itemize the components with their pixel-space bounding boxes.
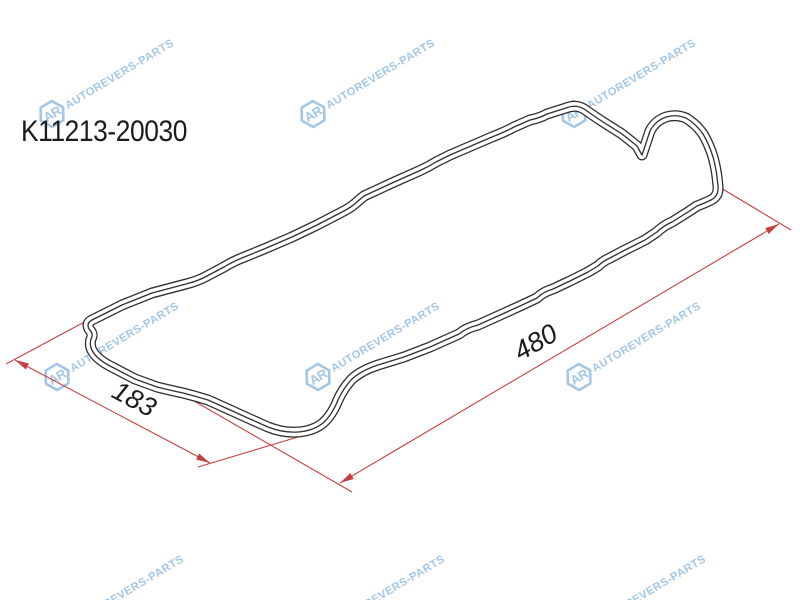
gasket-diagram: AR AUTOREVERS-PARTS K11213-20030 183 480 (0, 0, 800, 600)
extension-line-top-left (6, 319, 90, 364)
watermark (296, 32, 439, 131)
gasket-layer (88, 106, 718, 432)
watermark (45, 548, 188, 600)
extension-line-length-end (721, 188, 791, 230)
extension-line-bottom-left (198, 434, 308, 467)
technical-drawing-canvas: AR AUTOREVERS-PARTS K11213-20030 183 480 (0, 0, 800, 600)
watermark (306, 548, 449, 600)
gasket-outline-silhouette (88, 106, 718, 432)
watermark (567, 548, 710, 600)
extension-line-length-start (182, 394, 352, 492)
part-number: K11213-20030 (21, 113, 187, 147)
gasket-centerline (88, 106, 718, 432)
dimension-length-label: 480 (508, 318, 562, 367)
dimension-line-width (15, 360, 210, 463)
gasket-band-fill (88, 106, 718, 432)
part-number-group: K11213-20030 (21, 113, 187, 147)
